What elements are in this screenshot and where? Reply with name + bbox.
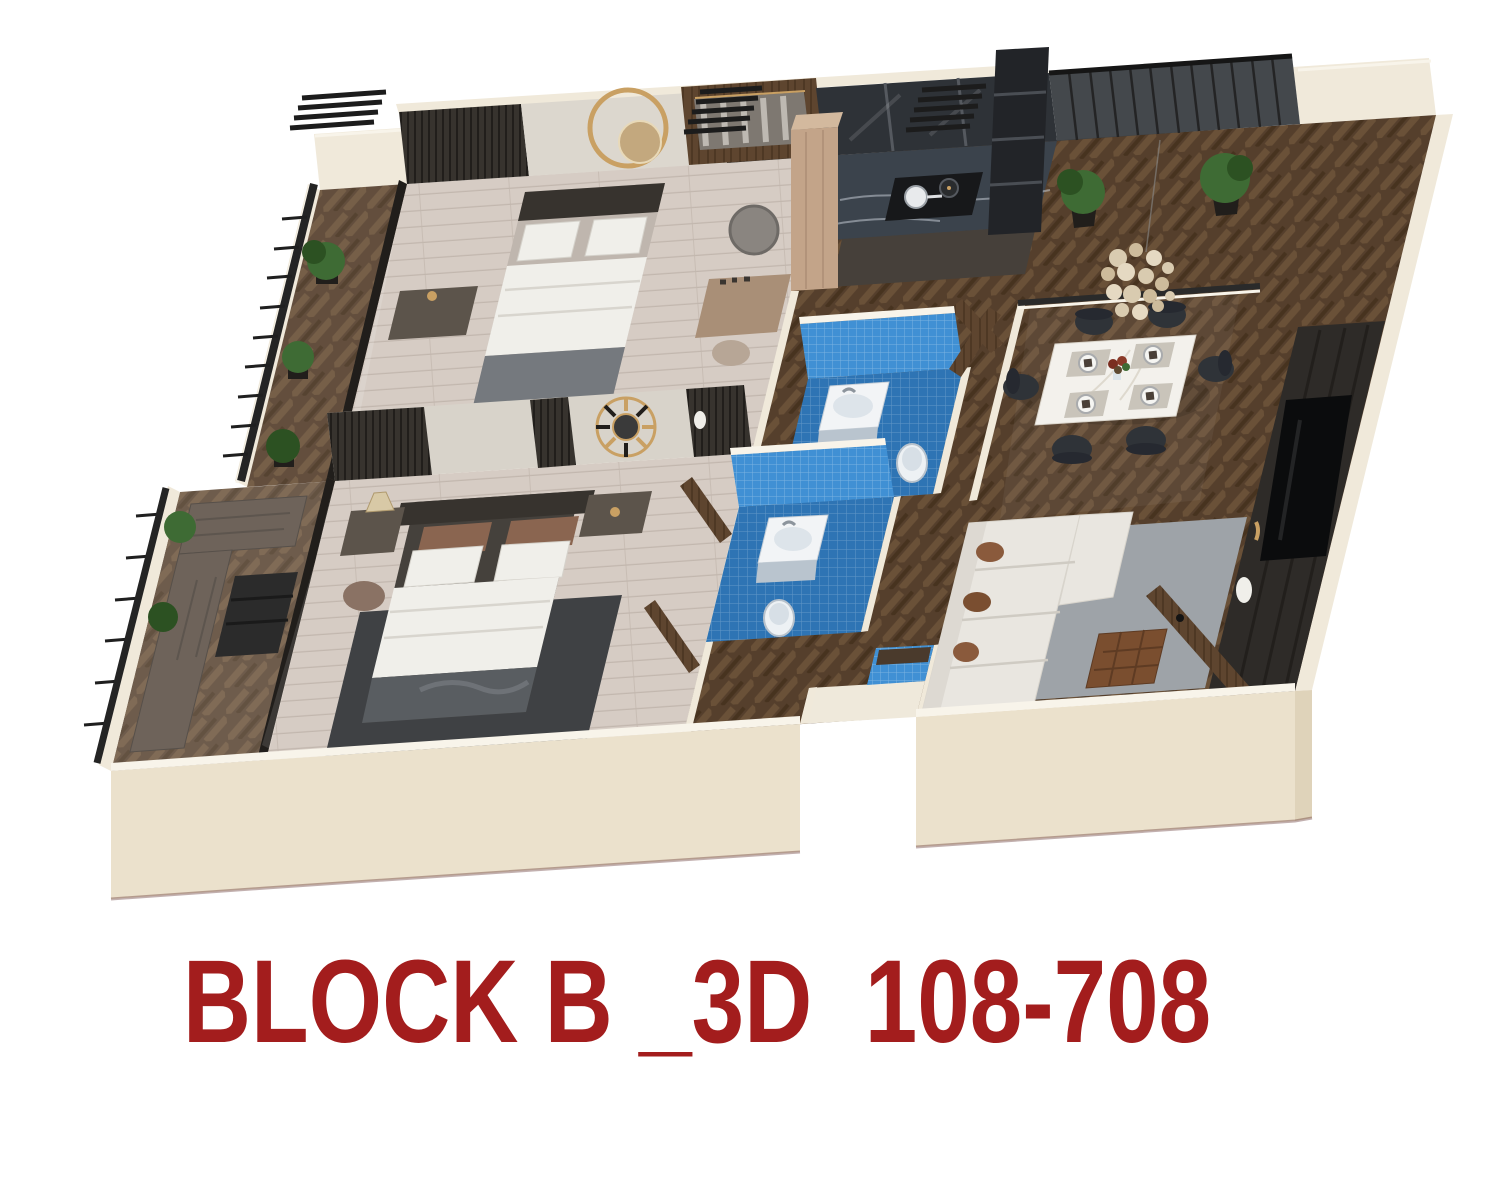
plate-setting — [1077, 395, 1095, 413]
dining-chair — [1075, 308, 1113, 335]
front-wall-right-side — [1295, 690, 1312, 821]
sink2-front — [756, 560, 817, 583]
dressing-mirror-icon — [730, 206, 778, 254]
balcony-plant-icon — [164, 511, 196, 543]
plant-icon — [1227, 155, 1253, 181]
nightstand-decor-icon — [610, 507, 620, 517]
dressing-table — [695, 274, 791, 338]
master-wall-slat-left — [327, 407, 432, 481]
pan-icon — [905, 186, 927, 208]
pot-knob — [947, 186, 951, 190]
sofa-pillow-brown — [953, 642, 979, 662]
plant-icon — [302, 240, 326, 264]
pillow-white — [404, 546, 483, 587]
slat-cluster-icon — [290, 92, 386, 128]
plant-icon — [1057, 169, 1083, 195]
wall-top-left-corner — [314, 128, 407, 190]
vase-icon — [1236, 577, 1252, 603]
bench-statue-icon — [427, 291, 437, 301]
entry-floor — [800, 681, 925, 724]
plate-setting — [1144, 346, 1162, 364]
bed1-pillow — [517, 221, 580, 261]
ring-lamp-disc — [619, 121, 661, 163]
pan-handle — [927, 196, 942, 197]
dining-chair — [1126, 426, 1166, 455]
dining-chair — [1052, 435, 1092, 464]
plate-setting — [1141, 387, 1159, 405]
sunburst-mirror-icon — [596, 397, 656, 457]
balcony-plant-icon — [148, 602, 178, 632]
dressing-stool — [712, 340, 750, 366]
bathroom2-wall — [731, 445, 894, 507]
laundry-niche-shelf — [876, 647, 931, 665]
door-handle-icon — [1176, 614, 1184, 622]
toilet2-seat — [769, 603, 789, 625]
master-wall-slat-mid — [530, 397, 576, 468]
bathroom1-wall — [800, 313, 963, 379]
sink1-basin — [833, 394, 873, 418]
sink2-basin — [774, 527, 812, 551]
tall-cabinet-beige — [791, 127, 838, 291]
sofa-pillow-brown — [963, 592, 991, 612]
plant-icon — [282, 341, 314, 373]
ottoman — [1086, 629, 1167, 688]
wall-vase-icon — [694, 411, 706, 429]
pouf — [343, 581, 385, 611]
plan-title: BLOCK B _3D 108-708 — [139, 938, 1254, 1068]
figurine-icon — [1256, 522, 1258, 540]
front-wall-balcony — [111, 760, 266, 899]
floor-plan-page: BLOCK B _3D 108-708 — [0, 0, 1500, 1200]
balcony-bench-horizontal — [179, 496, 307, 554]
plant-icon — [266, 429, 300, 463]
plate-setting — [1079, 354, 1097, 372]
bed1-pillow — [585, 217, 647, 256]
slat-wall-left — [399, 104, 529, 184]
pillow-white — [494, 541, 570, 581]
toilet1-seat — [902, 447, 922, 471]
sofa-pillow-brown — [976, 542, 1004, 562]
